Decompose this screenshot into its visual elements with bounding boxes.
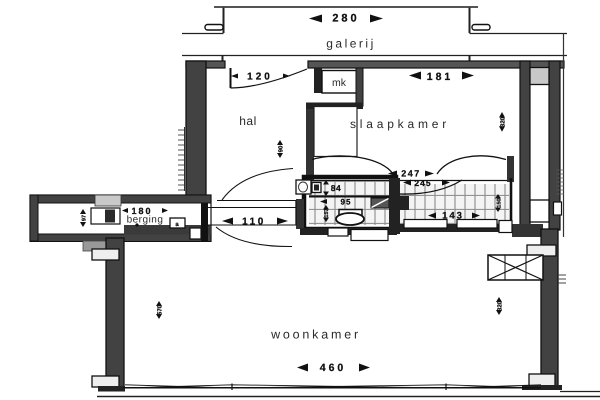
- svg-text:320: 320: [500, 116, 507, 127]
- svg-text:245: 245: [414, 178, 431, 188]
- svg-text:150: 150: [497, 198, 503, 207]
- svg-text:110: 110: [242, 217, 266, 228]
- svg-text:320: 320: [497, 300, 504, 311]
- svg-text:woonkamer: woonkamer: [270, 328, 361, 342]
- svg-text:157: 157: [324, 208, 330, 217]
- svg-text:95: 95: [341, 198, 352, 207]
- svg-text:84: 84: [331, 183, 341, 193]
- svg-text:slaapkamer: slaapkamer: [350, 117, 450, 131]
- svg-text:hal: hal: [239, 114, 257, 128]
- svg-text:570: 570: [157, 304, 164, 315]
- svg-text:181: 181: [427, 71, 454, 83]
- svg-text:90: 90: [278, 145, 285, 152]
- svg-text:mk: mk: [332, 77, 347, 89]
- svg-text:galerij: galerij: [326, 37, 376, 51]
- svg-text:120: 120: [247, 72, 273, 83]
- svg-text:97: 97: [82, 215, 88, 221]
- svg-text:280: 280: [332, 13, 359, 25]
- svg-text:berging: berging: [127, 215, 164, 226]
- svg-text:460: 460: [320, 362, 347, 374]
- svg-text:247: 247: [401, 169, 421, 179]
